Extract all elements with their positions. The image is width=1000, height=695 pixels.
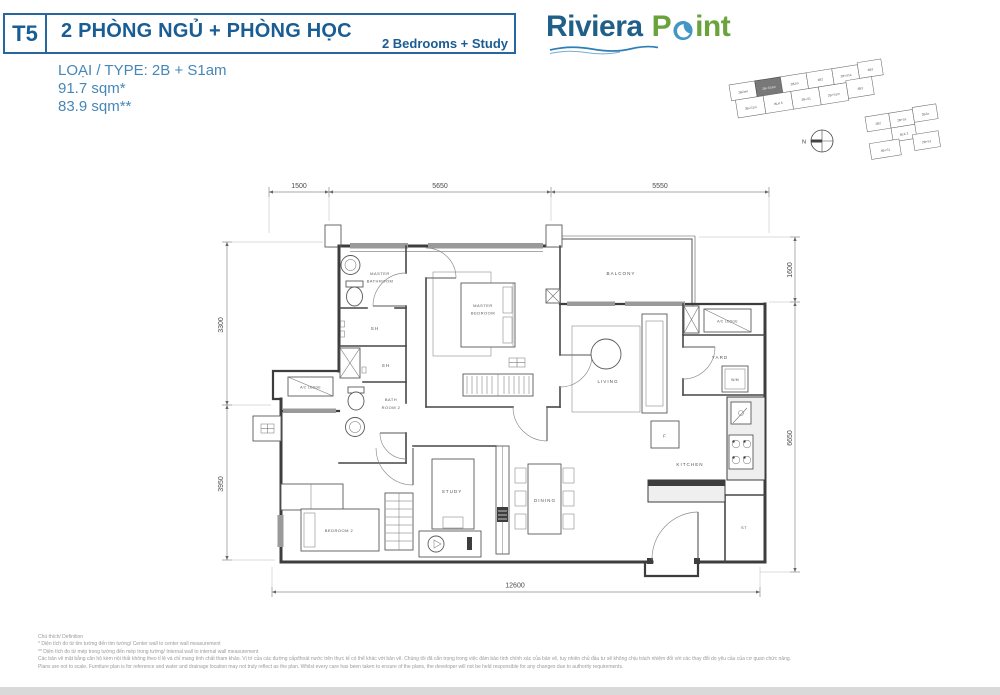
floor-plan: 1500 5650 5550 3300 3950 1600 6650 12600	[215, 175, 810, 640]
bedroom-2: BEDROOM 2	[278, 484, 414, 551]
master-bathroom: MASTER BATHROOM	[341, 256, 393, 307]
room-label: STUDY	[442, 489, 463, 494]
dim-right-2: 6650	[787, 430, 794, 446]
keyplan-block3: 2B2 2B+S1 2B2a BLK 3 4B+S1 2B+S1	[865, 104, 943, 160]
appliance-label: F	[663, 434, 667, 439]
room-label: SH	[371, 326, 379, 331]
toilet-icon	[346, 281, 363, 287]
shower-2: SH	[340, 348, 390, 378]
chair-icon	[563, 491, 574, 506]
room-label: BEDROOM 2	[325, 528, 354, 533]
chair-icon	[515, 491, 526, 506]
dim-top-1: 1500	[291, 183, 307, 190]
appliance-label: W/M	[731, 378, 739, 382]
kitchen-sink-icon	[731, 402, 751, 424]
dim-top-3: 5550	[652, 183, 668, 190]
dim-left-2: 3950	[218, 476, 225, 492]
footer-note: Plans are not to scale. Furniture plan i…	[38, 664, 968, 671]
floorplan-page: T5 2 PHÒNG NGỦ + PHÒNG HỌC 2 Bedrooms + …	[0, 0, 1000, 695]
unit-type: LOẠI / TYPE: 2B + S1am	[58, 62, 227, 80]
tower-badge: T5	[5, 15, 47, 52]
key-plan: 2B2am 2B+S1am 2B2m 2B2 2B+S1a 3B3 3B+S1m…	[715, 55, 960, 173]
room-label: BATHROOM	[367, 279, 394, 284]
room-label: ROOM 2	[382, 405, 401, 410]
logo-o-swirl-icon	[672, 19, 694, 41]
unit-area-gross: 91.7 sqm*	[58, 80, 227, 98]
coffee-table-icon	[591, 339, 621, 369]
footer-notes: Chú thích/ Definition * Diện tích đo từ …	[38, 634, 968, 671]
room-label: DINING	[534, 498, 556, 503]
room-label: LIVING	[597, 379, 618, 384]
page-subtitle: 2 Bedrooms + Study	[382, 36, 508, 51]
room-label: MASTER	[473, 303, 493, 308]
dim-right-1: 1600	[787, 262, 794, 278]
keyplan-block5: 2B2am 2B+S1am 2B2m 2B2 2B+S1a 3B3 3B+S1m…	[729, 59, 887, 119]
room-label: SH	[382, 363, 390, 368]
logo-wave-icon	[548, 45, 660, 57]
unit-area-net: 83.9 sqm**	[58, 98, 227, 116]
footer-note: Các bản vẽ mặt bằng căn hộ kèm nội thất …	[38, 656, 968, 663]
header-title-area: 2 PHÒNG NGỦ + PHÒNG HỌC 2 Bedrooms + Stu…	[47, 15, 514, 52]
room-label: A/C LEDGE	[300, 386, 321, 390]
sink-icon	[346, 418, 365, 437]
dining-room: DINING	[515, 464, 574, 534]
yard: YARD W/M	[712, 355, 748, 392]
footer-note: * Diện tích đo từ tim tường đến tim tườn…	[38, 641, 968, 648]
room-label: MASTER	[370, 271, 390, 276]
header: T5 2 PHÒNG NGỦ + PHÒNG HỌC 2 Bedrooms + …	[3, 13, 516, 54]
stove-icon	[729, 435, 753, 469]
compass-icon: N	[802, 130, 833, 152]
room-label: BEDROOM	[471, 311, 495, 316]
chair-icon	[515, 514, 526, 529]
daybed-icon	[432, 459, 474, 529]
chair-icon	[428, 536, 444, 552]
room-label: KITCHEN	[676, 462, 703, 467]
chair-icon	[563, 468, 574, 483]
ac-ledge-right: A/C LEDGE	[684, 306, 751, 333]
unit-info: LOẠI / TYPE: 2B + S1am 91.7 sqm* 83.9 sq…	[58, 62, 227, 116]
riviera-point-logo: Riviera P int	[546, 10, 730, 58]
sink-icon	[341, 256, 360, 275]
master-bedroom: MASTER BEDROOM	[433, 272, 560, 396]
dim-top-2: 5650	[432, 183, 448, 190]
page-title: 2 PHÒNG NGỦ + PHÒNG HỌC	[61, 20, 352, 43]
chair-icon	[515, 468, 526, 483]
room-label: ST	[741, 525, 747, 530]
shower-1: SH	[341, 321, 380, 337]
compass-north-label: N	[802, 140, 806, 146]
room-label: YARD	[712, 355, 728, 360]
room-label: A/C LEDGE	[717, 320, 738, 324]
logo-point-int: int	[695, 10, 730, 44]
living-room: LIVING	[572, 314, 667, 413]
dim-bottom: 12600	[505, 583, 525, 590]
room-label: BALCONY	[607, 271, 636, 276]
bathroom-2: BATH ROOM 2	[346, 387, 401, 437]
bottom-gray-strip	[0, 687, 1000, 695]
kitchen: F KITCHEN ST	[648, 397, 765, 530]
footer-note: Chú thích/ Definition	[38, 634, 968, 641]
dim-left-1: 3300	[218, 317, 225, 333]
balcony: BALCONY	[607, 271, 636, 276]
logo-point-p: P	[652, 10, 672, 44]
wardrobe-icon	[281, 484, 343, 510]
study: STUDY	[419, 446, 509, 557]
chair-icon	[563, 514, 574, 529]
room-label: BATH	[385, 397, 397, 402]
logo-riviera-text: Riviera	[546, 10, 643, 44]
